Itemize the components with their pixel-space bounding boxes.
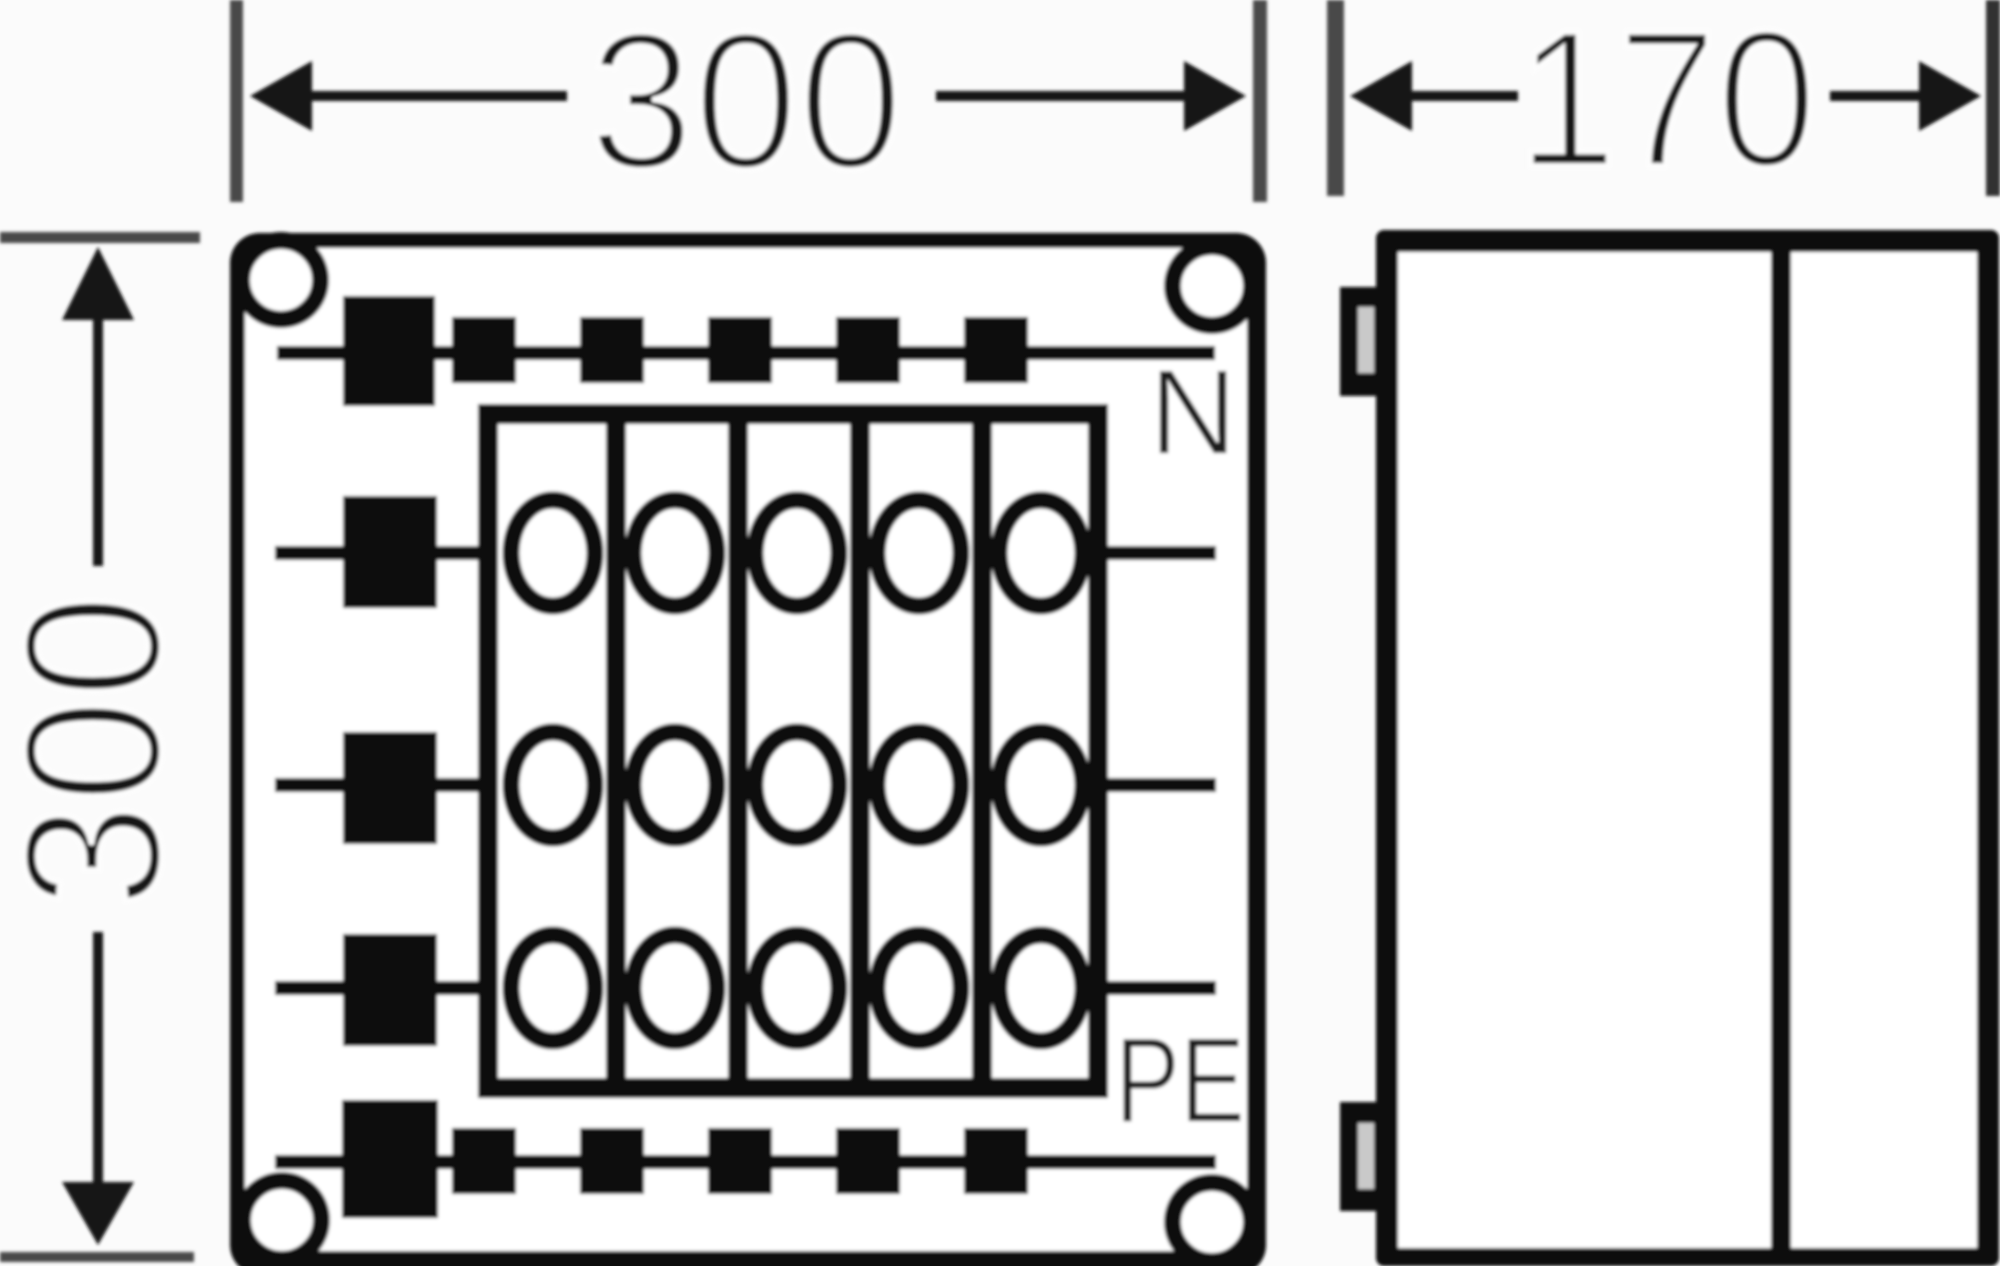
svg-text:N: N [1149, 344, 1237, 480]
svg-text:300: 300 [589, 0, 903, 210]
svg-text:300: 300 [0, 594, 202, 908]
svg-text:170: 170 [1517, 0, 1816, 208]
svg-text:PE: PE [1115, 1013, 1245, 1149]
